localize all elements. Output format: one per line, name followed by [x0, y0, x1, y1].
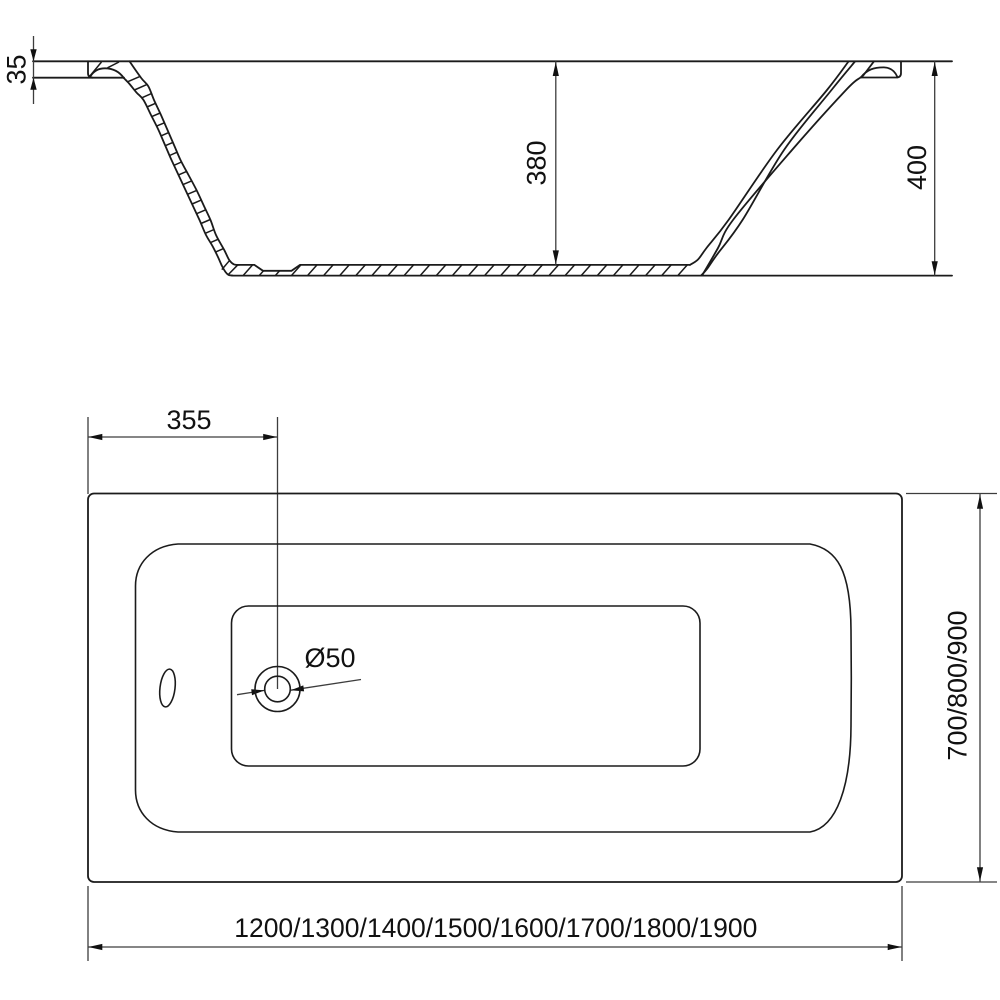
svg-text:700/800/900: 700/800/900 — [943, 610, 973, 760]
svg-text:355: 355 — [166, 405, 211, 435]
svg-text:35: 35 — [2, 54, 32, 84]
svg-text:400: 400 — [902, 145, 932, 190]
svg-text:1200/1300/1400/1500/1600/1700/: 1200/1300/1400/1500/1600/1700/1800/1900 — [234, 913, 757, 943]
svg-text:Ø50: Ø50 — [304, 643, 355, 673]
svg-text:380: 380 — [522, 140, 552, 185]
